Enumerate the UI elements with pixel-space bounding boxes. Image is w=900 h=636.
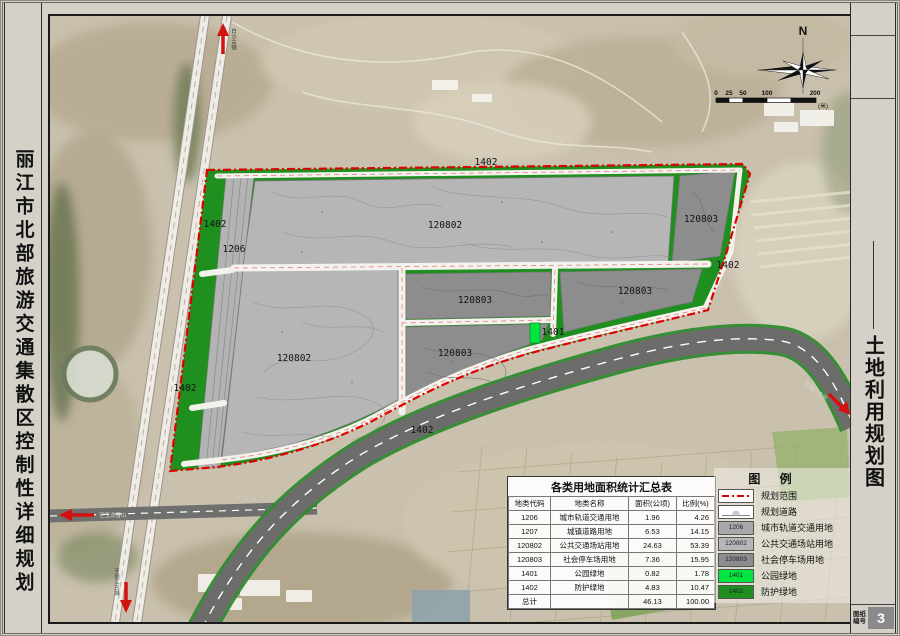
cell-name: 公共交通场站用地 — [550, 539, 628, 553]
color-swatch-1402: 1402 — [718, 585, 754, 599]
sheet-caption-line2: 编号 — [853, 618, 866, 625]
cell-area: 46.13 — [628, 595, 676, 609]
label-1402-curve: 1402 — [411, 425, 434, 436]
cell-area: 0.82 — [628, 567, 676, 581]
cell-name: 防护绿地 — [550, 581, 628, 595]
col-header-pct: 比例(%) — [676, 497, 714, 511]
legend-item-1206: 1206 城市轨道交通用地 — [714, 520, 852, 535]
col-header-code: 地类代码 — [509, 497, 551, 511]
cell-pct: 53.39 — [676, 539, 714, 553]
west-direction-label: 至玉龙雪山 — [99, 511, 127, 519]
parcel-1401-park — [530, 323, 540, 343]
legend-title: 图 例 — [714, 470, 834, 487]
legend-label: 社会停车场用地 — [761, 553, 824, 566]
legend-item-road: 规划道路 — [714, 504, 852, 519]
table-row: 1401 公园绿地 0.82 1.78 — [509, 567, 715, 581]
cell-pct: 100.00 — [676, 595, 714, 609]
table-row: 120802 公共交通场站用地 24.63 53.39 — [509, 539, 715, 553]
table-title: 各类用地面积统计汇总表 — [508, 477, 715, 496]
table-header-row: 地类代码 地类名称 面积(公顷) 比例(%) — [509, 497, 715, 511]
cell-pct: 1.78 — [676, 567, 714, 581]
sheet-number-caption: 图纸 编号 — [852, 611, 867, 625]
sheet-name: 土地利用规划图 — [859, 335, 888, 489]
color-swatch-1206: 1206 — [718, 521, 754, 535]
color-swatch-120803: 120803 — [718, 553, 754, 567]
decorative-line — [873, 241, 874, 329]
label-1401: 1401 — [542, 327, 565, 338]
label-120802-upper: 120802 — [428, 220, 462, 231]
cell-area: 1.96 — [628, 511, 676, 525]
cell-pct: 10.47 — [676, 581, 714, 595]
cell-code: 120802 — [509, 539, 551, 553]
right-title-bar: 土地利用规划图 图纸 编号 3 — [850, 3, 896, 633]
divider — [851, 35, 895, 36]
cell-area: 6.53 — [628, 525, 676, 539]
scale-tick-50: 50 — [739, 90, 747, 97]
cell-pct: 15.95 — [676, 553, 714, 567]
map-legend: 图 例 规划范围 规划道路 1206 城市轨道交通用地 120802 公共交通场… — [714, 468, 852, 603]
label-1402-left-lower: 1402 — [174, 383, 197, 394]
cell-area: 7.36 — [628, 553, 676, 567]
scale-unit: (米) — [818, 102, 828, 110]
scale-tick-100: 100 — [762, 90, 773, 97]
south-direction-label: 至丽江古城 — [113, 568, 120, 597]
legend-item-1401: 1401 公园绿地 — [714, 568, 852, 583]
road-swatch — [718, 505, 754, 519]
cell-code: 120803 — [509, 553, 551, 567]
table-row: 120803 社会停车场用地 7.36 15.95 — [509, 553, 715, 567]
cell-name: 公园绿地 — [550, 567, 628, 581]
legend-label: 防护绿地 — [761, 585, 797, 598]
scale-tick-200: 200 — [810, 90, 821, 97]
label-120803-topright: 120803 — [684, 214, 718, 225]
compass-north-label: N — [799, 24, 808, 38]
sheet-caption-line1: 图纸 — [853, 611, 866, 618]
cell-area: 24.63 — [628, 539, 676, 553]
cell-name: 社会停车场用地 — [550, 553, 628, 567]
table-row: 1206 城市轨道交通用地 1.96 4.26 — [509, 511, 715, 525]
north-direction-label: 白沙古镇 — [230, 27, 237, 52]
round-pond — [64, 348, 116, 400]
sheet-number: 3 — [868, 607, 894, 629]
plan-sheet: 丽江市北部旅游交通集散区控制性详细规划 — [0, 0, 900, 636]
label-120802-lower: 120802 — [277, 353, 311, 364]
col-header-name: 地类名称 — [550, 497, 628, 511]
label-1402-right: 1402 — [717, 260, 740, 271]
scale-tick-25: 25 — [725, 90, 733, 97]
left-title-bar: 丽江市北部旅游交通集散区控制性详细规划 — [4, 3, 42, 633]
label-1402-top: 1402 — [475, 157, 498, 168]
legend-item-boundary: 规划范围 — [714, 488, 852, 503]
legend-item-120802: 120802 公共交通场站用地 — [714, 536, 852, 551]
label-1206: 1206 — [223, 244, 246, 255]
dash-dot-line-icon — [722, 495, 750, 497]
cell-code: 1402 — [509, 581, 551, 595]
label-120803-lowermid: 120803 — [438, 348, 472, 359]
label-1402-left-upper: 1402 — [204, 219, 227, 230]
cell-code: 1206 — [509, 511, 551, 525]
sheet-number-block: 图纸 编号 3 — [851, 604, 895, 631]
legend-label: 公园绿地 — [761, 569, 797, 582]
legend-label: 规划范围 — [761, 489, 797, 502]
road-profile-icon — [722, 508, 750, 516]
table-total-row: 总计 46.13 100.00 — [509, 595, 715, 609]
plan-title: 丽江市北部旅游交通集散区控制性详细规划 — [10, 149, 37, 596]
cell-name: 城市轨道交通用地 — [550, 511, 628, 525]
legend-item-1402: 1402 防护绿地 — [714, 584, 852, 599]
cell-pct: 14.15 — [676, 525, 714, 539]
color-swatch-1401: 1401 — [718, 569, 754, 583]
color-swatch-120802: 120802 — [718, 537, 754, 551]
cell-area: 4.83 — [628, 581, 676, 595]
cell-name — [550, 595, 628, 609]
legend-label: 公共交通场站用地 — [761, 537, 833, 550]
label-120803-rightmid: 120803 — [618, 286, 652, 297]
cell-code: 总计 — [509, 595, 551, 609]
label-120803-mid: 120803 — [458, 295, 492, 306]
cell-pct: 4.26 — [676, 511, 714, 525]
table-row: 1207 城镇道路用地 6.53 14.15 — [509, 525, 715, 539]
col-header-area: 面积(公顷) — [628, 497, 676, 511]
scale-tick-0: 0 — [714, 90, 718, 97]
reservoir — [412, 590, 470, 622]
legend-label: 规划道路 — [761, 505, 797, 518]
cell-name: 城镇道路用地 — [550, 525, 628, 539]
cell-code: 1401 — [509, 567, 551, 581]
map-frame: 1402 120802 120803 1402 1206 1402 120803… — [48, 14, 852, 624]
table-row: 1402 防护绿地 4.83 10.47 — [509, 581, 715, 595]
divider — [851, 98, 895, 99]
landuse-statistics-table: 各类用地面积统计汇总表 地类代码 地类名称 面积(公顷) 比例(%) 1206 … — [507, 476, 716, 610]
boundary-swatch — [718, 489, 754, 503]
legend-label: 城市轨道交通用地 — [761, 521, 833, 534]
legend-item-120803: 120803 社会停车场用地 — [714, 552, 852, 567]
cell-code: 1207 — [509, 525, 551, 539]
